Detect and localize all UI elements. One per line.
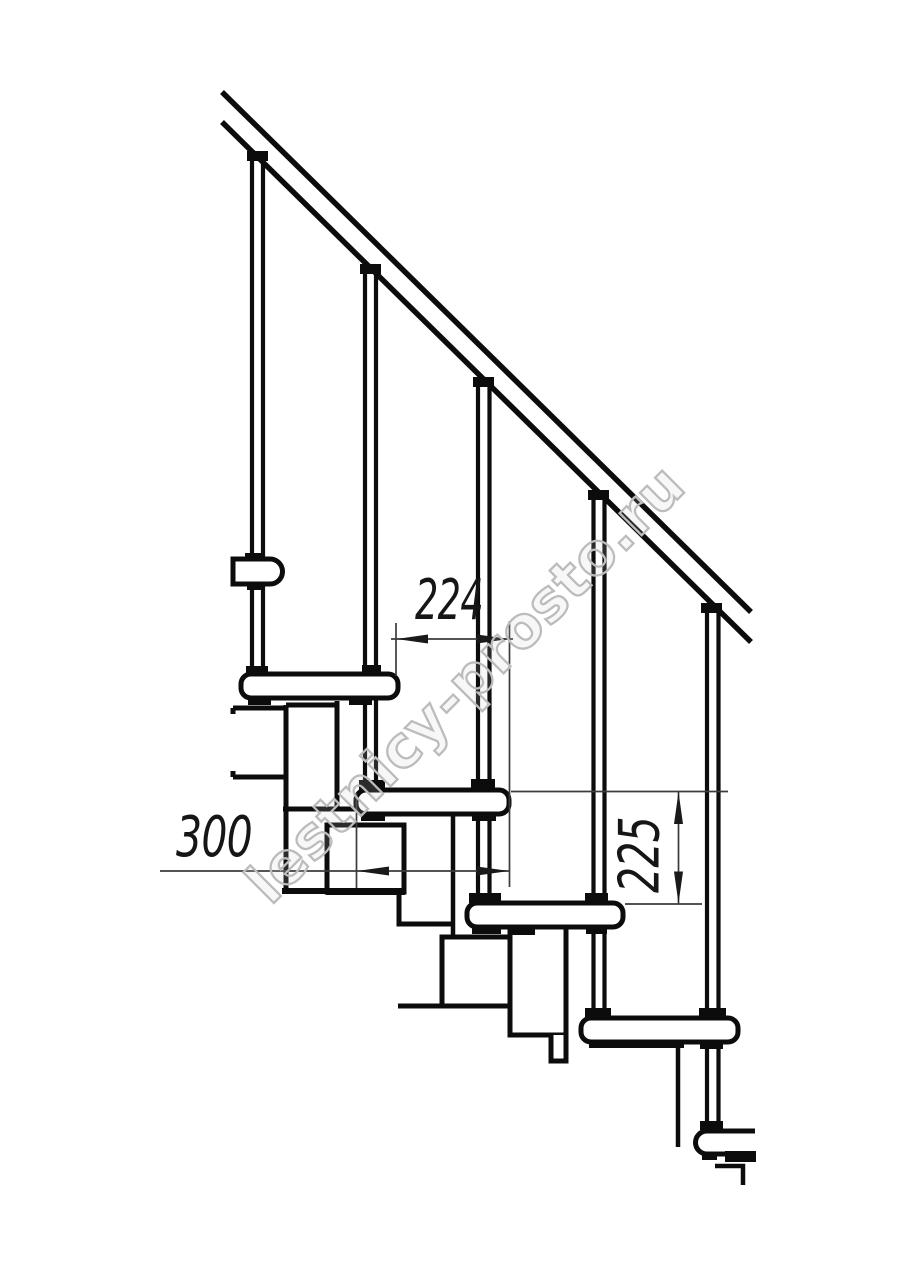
module-box-3: [442, 937, 517, 1006]
tread-2: [356, 790, 509, 814]
stub-under-mark: [247, 584, 263, 590]
module-box-2: [327, 825, 404, 892]
baluster-5: [707, 611, 719, 1131]
baluster-3: [478, 385, 490, 905]
baluster-3-clamp-top: [471, 779, 495, 789]
tread-1: [241, 674, 398, 698]
module-base-bar-2: [326, 888, 405, 895]
module-stub-3: [551, 1035, 566, 1061]
tread-5-cut: [696, 1131, 756, 1154]
tread-2-under-mark-b: [472, 814, 496, 821]
baluster-2-clamp-top: [362, 665, 381, 675]
tread-3-under-mark-b: [508, 929, 535, 935]
baluster-1: [252, 159, 263, 676]
staircase-technical-drawing: 224 300 225: [0, 0, 914, 1280]
handrail-upper-line: [222, 92, 751, 612]
dim-225-arrow-down: [674, 872, 683, 904]
tread-3-under-mark-c: [586, 927, 607, 934]
baluster-5-clamp-top: [699, 1008, 726, 1018]
tread-5-under-mark: [702, 1153, 717, 1160]
baluster-4-clamp-top: [585, 893, 608, 903]
drawing-canvas: 224 300 225 lestnicy-prosto.ru: [0, 0, 914, 1280]
tread-1-under-mark-b: [349, 698, 372, 705]
baluster-1-stub-bracket: [245, 553, 264, 561]
landing-tread-stub: [233, 559, 283, 584]
dimension-225: 225: [511, 792, 728, 905]
handrail-lower-line: [222, 122, 751, 642]
tread-3-under-mark-a: [472, 927, 501, 934]
tread-4-under-band: [589, 1042, 684, 1048]
tread-1-under-mark-a: [248, 698, 271, 705]
baluster-1-foot: [246, 666, 268, 675]
baluster-2: [365, 272, 376, 790]
dim-225-arrow-up: [674, 792, 683, 824]
dim-225-label: 225: [608, 817, 673, 893]
dim-300-label: 300: [176, 805, 252, 870]
dim-224-arrow-left: [397, 635, 429, 644]
tread-5-under-band: [725, 1151, 756, 1162]
baluster-2-foot: [359, 780, 385, 790]
dim-224-arrow-right: [477, 635, 509, 644]
upper-support-bracket: [233, 708, 286, 777]
baluster-3-foot: [469, 893, 501, 903]
dim-224-label: 224: [415, 568, 483, 633]
handrail: [222, 92, 751, 642]
bottom-cut-contour: [715, 1166, 743, 1185]
dim-300-arrow-right: [477, 867, 509, 876]
tread-4: [581, 1018, 738, 1042]
module-connector-2: [399, 892, 452, 924]
baluster-5-foot: [700, 1121, 723, 1130]
tread-2-under-mark-a: [361, 814, 385, 821]
baluster-4: [594, 498, 605, 1020]
tread-3: [467, 903, 623, 927]
baluster-4-foot: [585, 1008, 611, 1018]
tread-4-under-mark: [700, 1042, 723, 1049]
module-tube-3: [510, 927, 566, 1035]
